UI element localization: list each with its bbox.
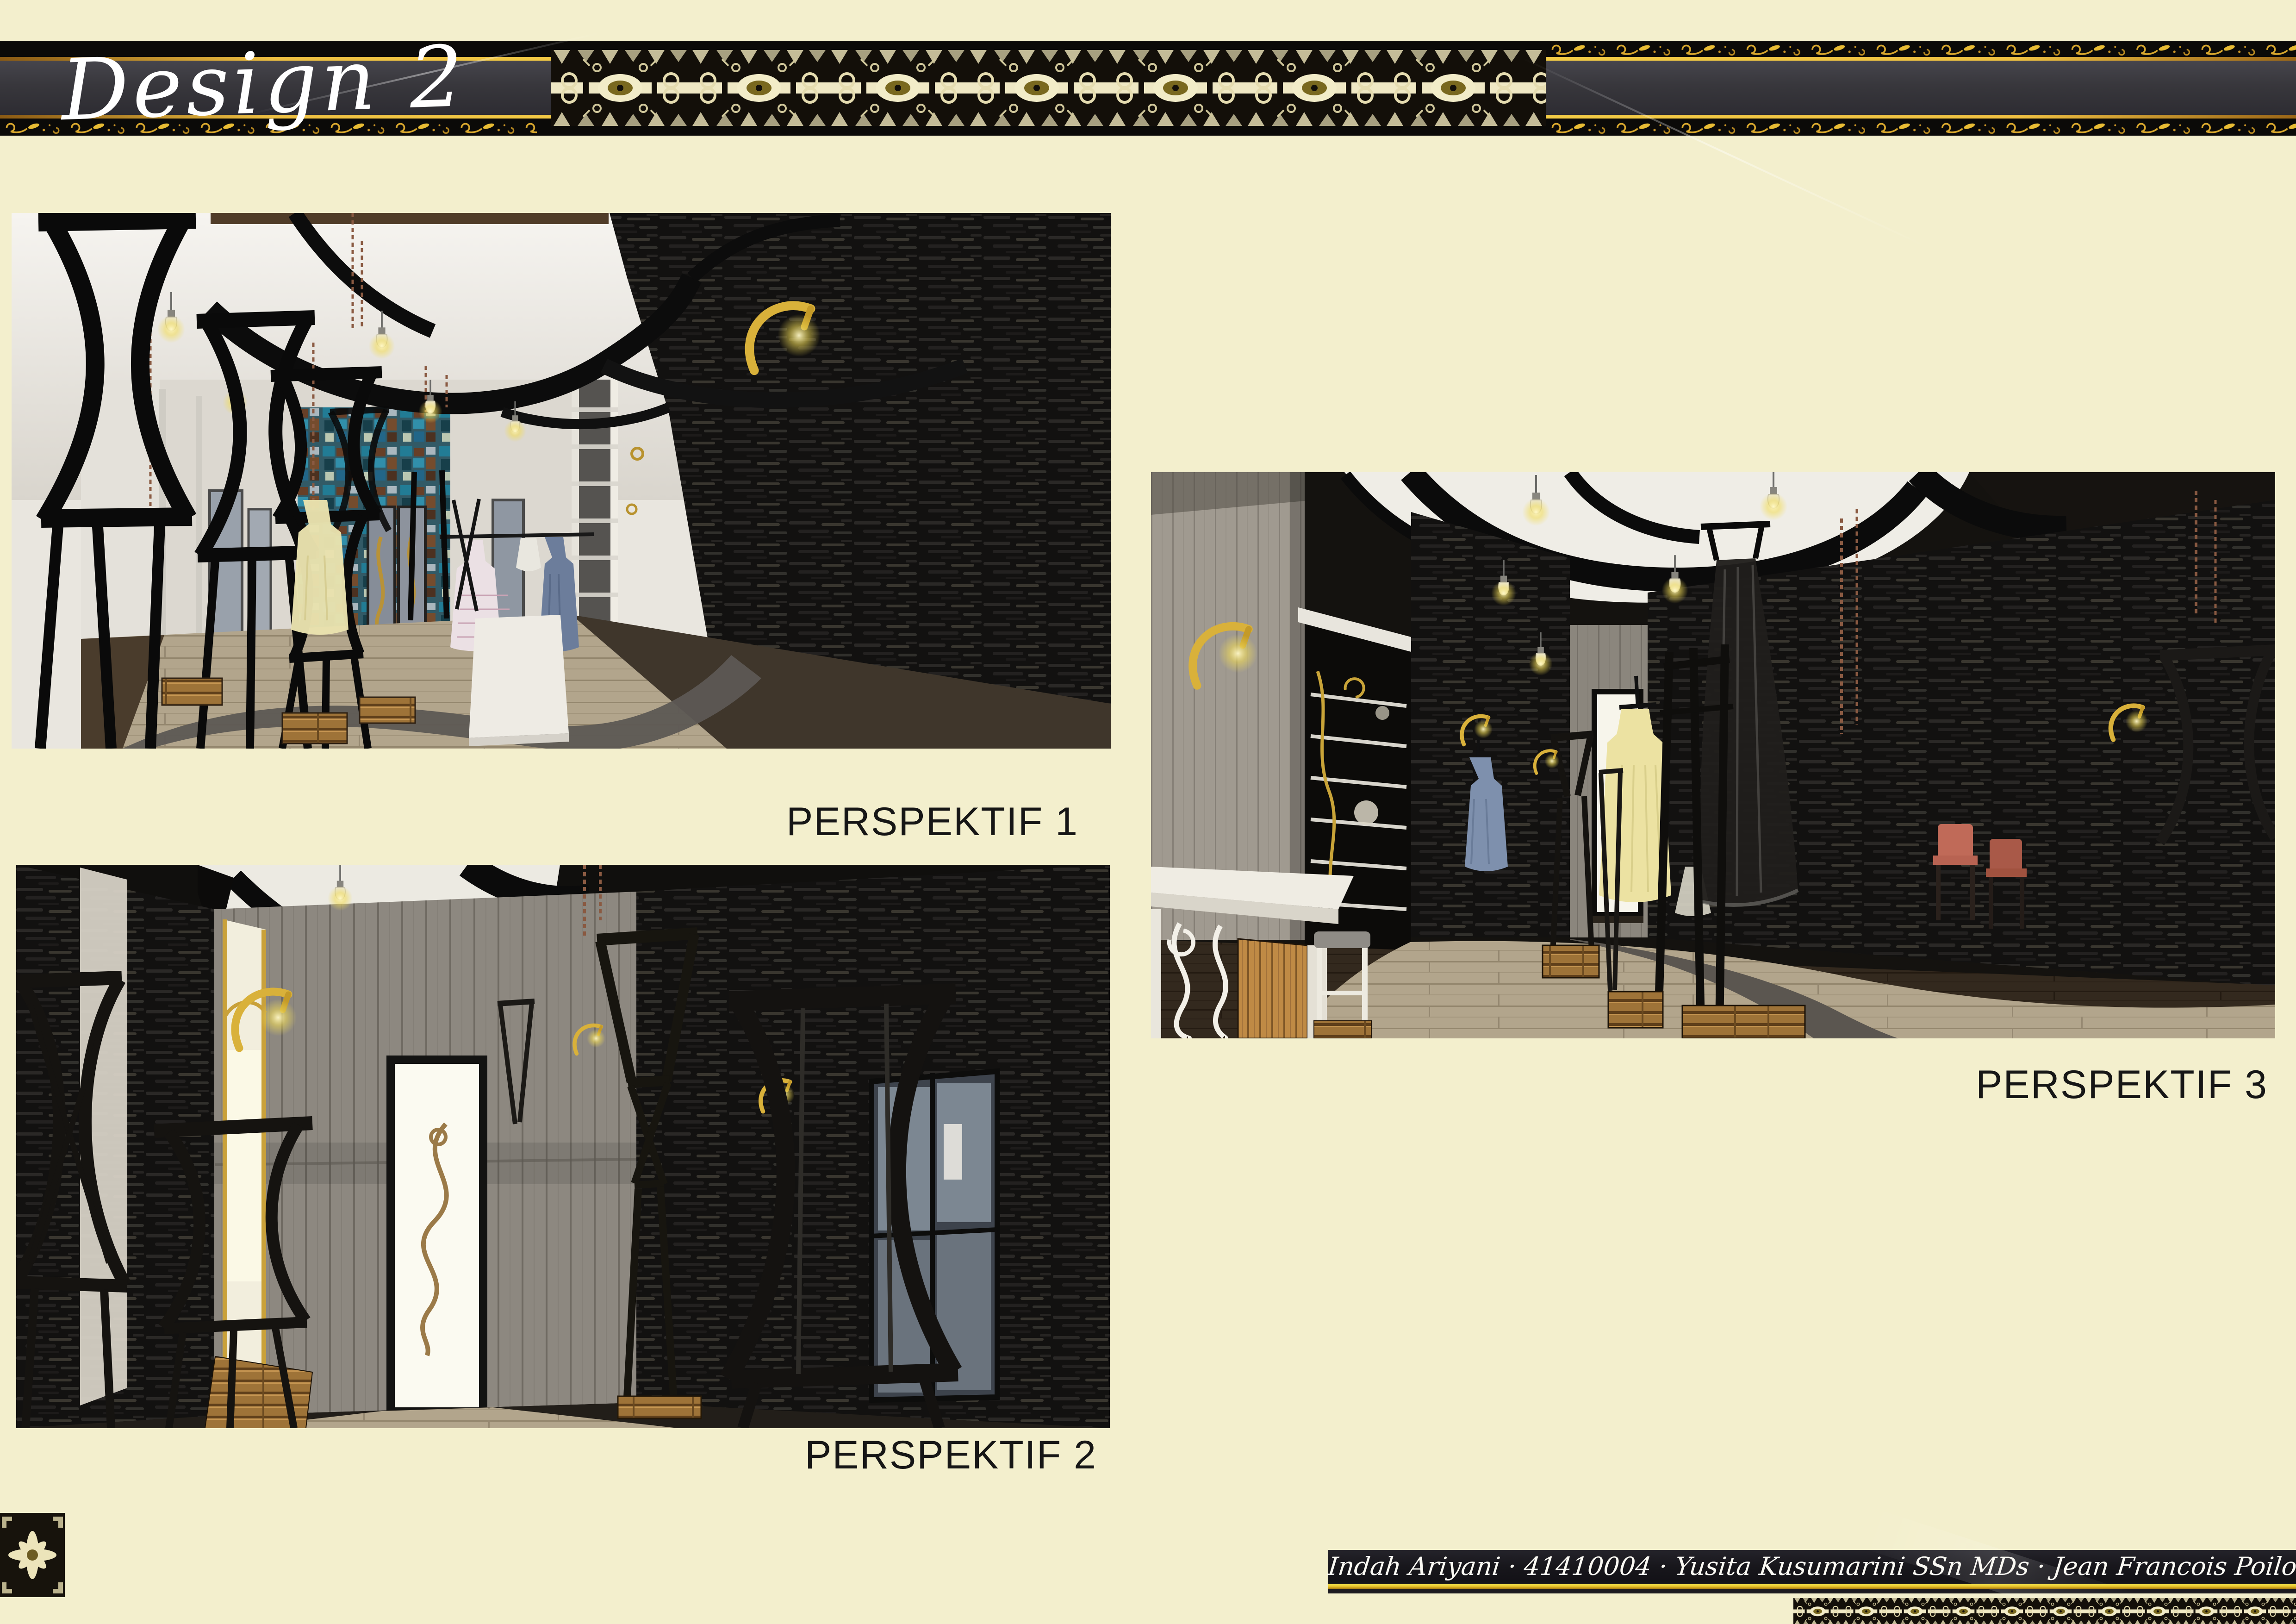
batik-pattern-icon bbox=[551, 50, 1546, 126]
perspective-1-image bbox=[12, 213, 1111, 749]
perspective-2-image bbox=[16, 865, 1110, 1428]
perspective-2-render bbox=[16, 865, 1110, 1428]
presentation-board: Design 2 bbox=[0, 0, 2296, 1624]
footer-gold-line bbox=[1328, 1584, 2296, 1589]
perspective-1-label: PERSPEKTIF 1 bbox=[754, 802, 1078, 842]
gold-scroll-icon bbox=[1546, 41, 2296, 57]
batik-strip-icon bbox=[1793, 1598, 2296, 1624]
perspective-3-label: PERSPEKTIF 3 bbox=[1944, 1065, 2268, 1105]
batik-medallion-icon bbox=[0, 1513, 65, 1597]
perspective-2-label: PERSPEKTIF 2 bbox=[773, 1435, 1097, 1475]
batik-pattern-band bbox=[551, 50, 1546, 126]
perspective-1-render bbox=[12, 213, 1111, 749]
page-title: Design 2 bbox=[60, 27, 468, 139]
batik-medallion-bottom-left bbox=[0, 1513, 65, 1597]
perspective-3-image bbox=[1151, 472, 2275, 1038]
batik-strip-bottom-right bbox=[1793, 1598, 2296, 1624]
footer-credits-bar: Indah Ariyani · 41410004 · Yusita Kusuma… bbox=[1328, 1550, 2296, 1593]
footer-credits-text: Indah Ariyani · 41410004 · Yusita Kusuma… bbox=[1327, 1552, 2296, 1581]
perspective-3-render bbox=[1151, 472, 2275, 1038]
header-banner: Design 2 bbox=[0, 41, 2296, 136]
gold-scroll-ornament-top-right bbox=[1546, 41, 2296, 57]
